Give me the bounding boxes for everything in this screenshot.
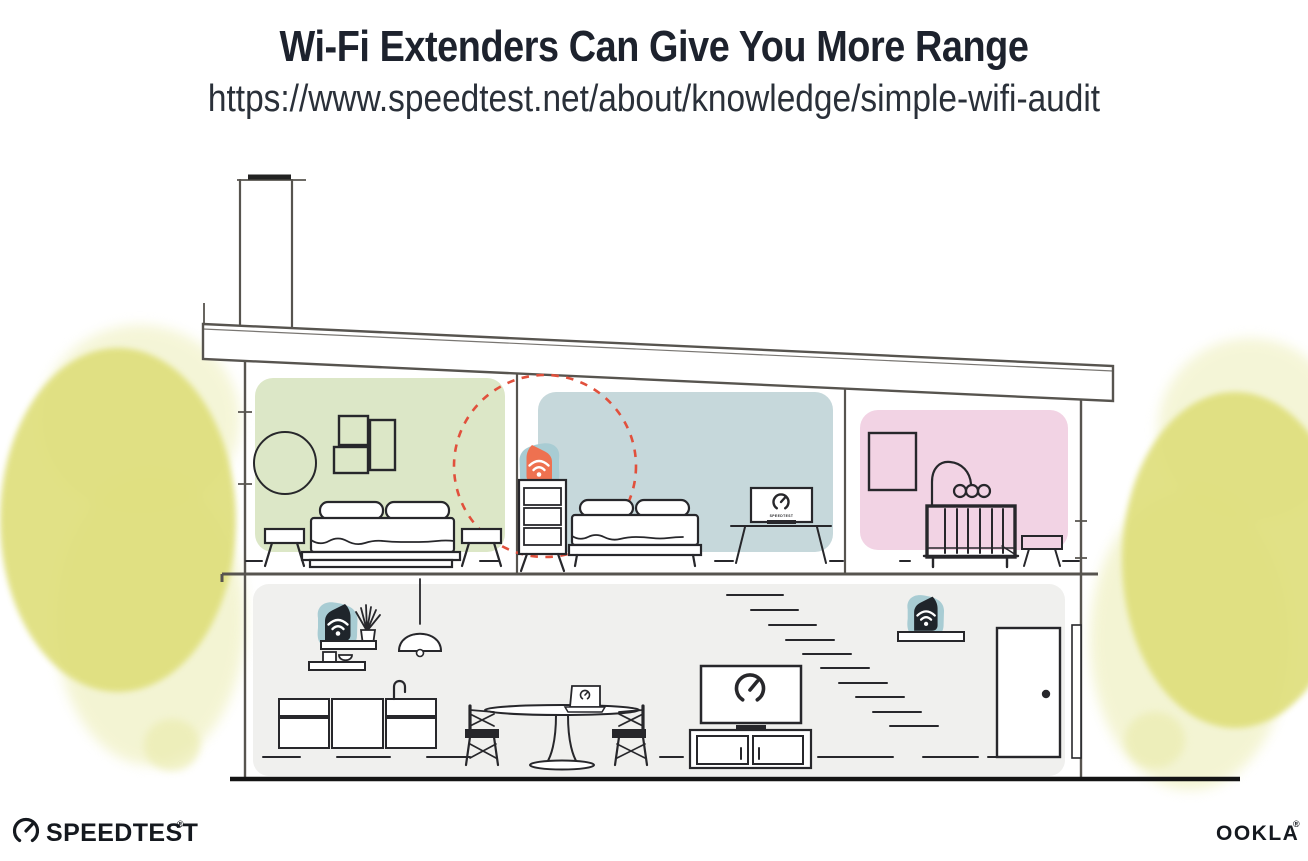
- chimney: [237, 177, 306, 329]
- ookla-wordmark: OOKLA: [1216, 822, 1299, 845]
- foliage-left: [0, 325, 245, 771]
- door-knob: [1042, 690, 1050, 698]
- bowl: [339, 655, 352, 660]
- floor-separator: [222, 574, 1098, 582]
- bed-green: [302, 502, 460, 567]
- downspout: [1072, 625, 1081, 758]
- svg-text:SPEEDTEST: SPEEDTEST: [770, 514, 794, 518]
- foliage-right: [1090, 338, 1308, 790]
- shelf-lower: [309, 662, 365, 670]
- speedtest-logo: SPEEDTEST ®: [14, 819, 198, 847]
- speedtest-registered-mark: ®: [177, 819, 184, 829]
- ookla-logo: OOKLA ®: [1216, 819, 1300, 845]
- cup: [323, 652, 336, 662]
- entry-shelf: [898, 632, 964, 641]
- nursery-stool: [1022, 536, 1062, 566]
- laptop: [565, 686, 605, 712]
- ookla-registered-mark: ®: [1293, 819, 1300, 829]
- dresser: [519, 480, 566, 571]
- shelf-upper: [321, 641, 376, 649]
- tv-living-room: SPEEDTEST: [701, 666, 801, 729]
- media-console: [690, 730, 811, 768]
- nursery-wall-pink: [860, 410, 1068, 550]
- house-illustration: SPEEDTEST: [0, 0, 1308, 861]
- speedtest-gauge-icon: [14, 819, 37, 840]
- speedtest-wordmark: SPEEDTEST: [46, 819, 198, 847]
- front-door: [997, 628, 1060, 757]
